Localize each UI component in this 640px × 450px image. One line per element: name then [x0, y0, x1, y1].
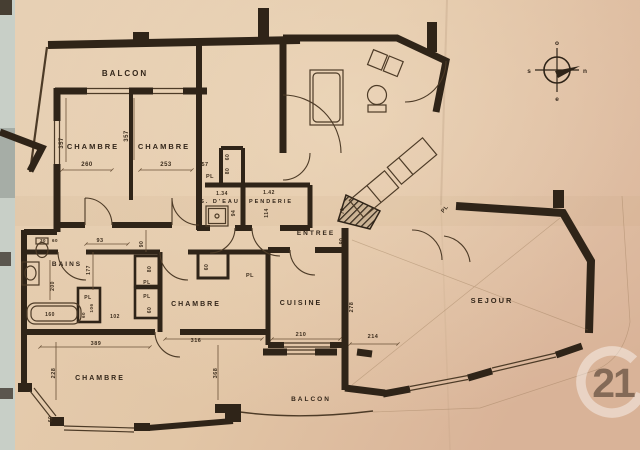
dim-260: 260 [81, 162, 93, 168]
dim-60-left: 60 [81, 312, 86, 318]
dim-90-entree: 90 [339, 238, 345, 245]
dim-210: 210 [296, 332, 307, 338]
wall-tab [258, 8, 269, 42]
dim-60-mid: 60 [147, 307, 153, 314]
label-chambre-n: CHAMBRE [138, 142, 190, 151]
dim-70: 70 [340, 208, 346, 215]
label-pl: PL [84, 295, 91, 301]
dim-228: 228 [51, 368, 57, 379]
floor-plan-svg: BALCON CHAMBRE CHAMBRE S. D'EAU PENDERIE… [0, 0, 640, 450]
scan-edge-strip [0, 0, 15, 450]
label-pl: PL [143, 294, 150, 300]
dim-60-closet: 60 [204, 264, 210, 271]
dim-60-wc: 60 [52, 238, 58, 243]
dim-60-pl: 60 [225, 154, 231, 161]
dim-142: 1.42 [263, 190, 275, 196]
dim-94: 94 [231, 210, 237, 217]
label-balcon-bottom: BALCON [291, 396, 331, 403]
wall-tab [427, 22, 437, 52]
corner-mark [0, 0, 12, 15]
dim-316: 316 [191, 338, 202, 344]
dim-60-bay: 60 [48, 416, 54, 423]
label-bains: BAINS [52, 261, 82, 268]
dim-389: 389 [91, 341, 102, 347]
dim-278: 278 [349, 302, 355, 313]
dim-368: 368 [213, 368, 219, 379]
dim-134: 1.34 [216, 191, 228, 197]
compass-north: n [583, 68, 587, 75]
dim-177: 177 [86, 265, 92, 275]
label-entree: ENTREE [297, 230, 335, 237]
dim-57: 57 [201, 162, 208, 168]
dim-80-mid: 80 [147, 266, 153, 273]
compass-west: o [555, 40, 559, 47]
dim-214: 214 [368, 334, 379, 340]
dim-114: 114 [264, 208, 270, 218]
dim-200: 200 [50, 281, 56, 291]
label-pl: PL [143, 280, 150, 286]
dim-357-nw: 357 [59, 137, 65, 149]
compass-east: e [555, 96, 559, 103]
floor-plan-scan: BALCON CHAMBRE CHAMBRE S. D'EAU PENDERIE… [0, 0, 640, 450]
label-cuisine: CUISINE [280, 300, 322, 307]
label-pl: PL [206, 174, 214, 180]
label-sejour: SEJOUR [471, 296, 514, 305]
label-pl: PL [246, 273, 254, 279]
compass-south: s [527, 68, 531, 75]
c21-number: 21 [592, 360, 635, 406]
dim-253: 253 [160, 162, 172, 168]
dim-102: 102 [110, 314, 120, 320]
wall-tab [133, 32, 149, 44]
dim-160: 160 [45, 312, 55, 318]
dim-93: 93 [96, 238, 103, 244]
label-chambre-mid: CHAMBRE [171, 301, 221, 308]
dim-80-pl: 80 [225, 168, 231, 175]
label-chambre-sw: CHAMBRE [75, 375, 125, 382]
dim-106: 106 [89, 303, 94, 312]
dim-30: 30 [40, 238, 46, 243]
dim-90-hall: 90 [139, 241, 145, 248]
label-balcon-top: BALCON [102, 69, 148, 78]
dim-357-n: 357 [124, 130, 130, 142]
label-sdeau: S. D'EAU [200, 199, 240, 205]
label-penderie: PENDERIE [249, 199, 293, 205]
label-chambre-nw: CHAMBRE [67, 142, 119, 151]
